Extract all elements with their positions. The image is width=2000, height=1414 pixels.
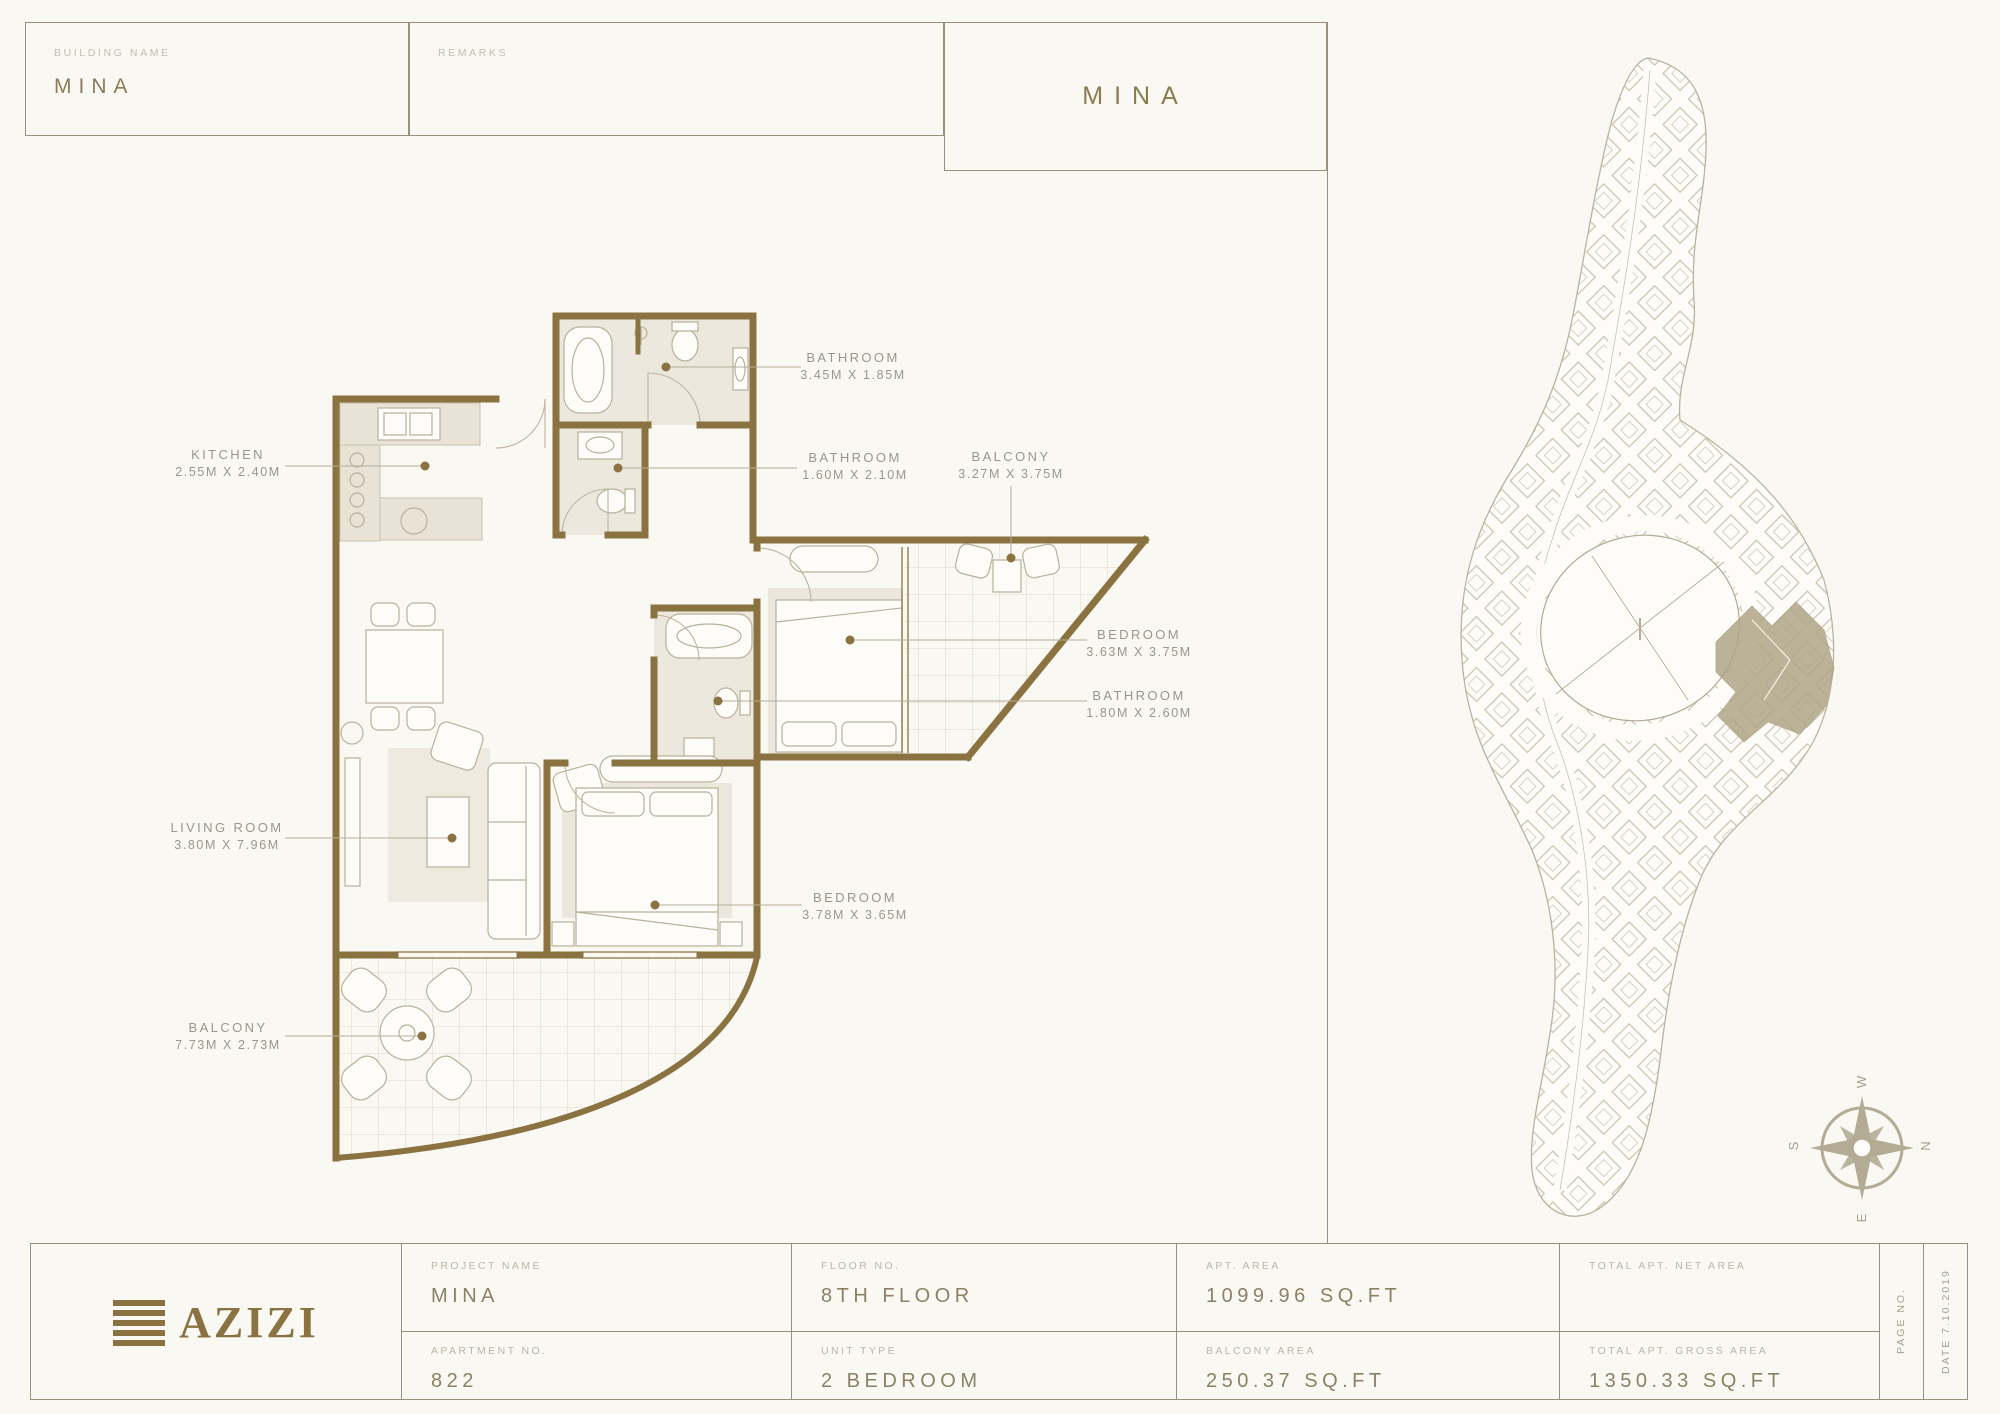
room-label-bedroom-2: BEDROOM3.78M X 3.65M [802, 890, 908, 922]
project-name-cell: PROJECT NAME MINA [431, 1260, 542, 1308]
page-no-label: PAGE NO. [1879, 1244, 1923, 1399]
apartment-no-cell: APARTMENT NO. 822 [431, 1345, 547, 1393]
room-label-bathroom-2: BATHROOM1.60M X 2.10M [802, 450, 908, 482]
compass-south-label: S [1786, 1141, 1801, 1150]
balcony-area-cell: BALCONY AREA 250.37 SQ.FT [1206, 1345, 1386, 1393]
total-net-area-cell: TOTAL APT. NET AREA [1589, 1260, 1746, 1285]
room-label-balcony-2: BALCONY7.73M X 2.73M [175, 1020, 281, 1052]
compass-north-label: N [1918, 1141, 1933, 1150]
compass-icon: W N E S [1786, 1075, 1933, 1222]
azizi-logo-bars-icon [113, 1300, 165, 1346]
floor-plan [0, 0, 1327, 1242]
panel-divider [1327, 22, 1328, 1243]
compass-east-label: E [1854, 1213, 1869, 1222]
site-plan: W N E S [1330, 0, 2000, 1242]
date-label: DATE 7.10.2019 [1923, 1244, 1969, 1399]
total-gross-area-cell: TOTAL APT. GROSS AREA 1350.33 SQ.FT [1589, 1345, 1784, 1393]
unit-type-cell: UNIT TYPE 2 BEDROOM [821, 1345, 982, 1393]
azizi-logo-text: AZIZI [179, 1301, 319, 1345]
azizi-logo: AZIZI [31, 1244, 401, 1401]
apt-area-cell: APT. AREA 1099.96 SQ.FT [1206, 1260, 1401, 1308]
room-label-kitchen: KITCHEN2.55M X 2.40M [175, 447, 281, 479]
room-label-bedroom-1: BEDROOM3.63M X 3.75M [1086, 627, 1192, 659]
title-block-table: AZIZI PROJECT NAME MINA APARTMENT NO. 82… [30, 1243, 1968, 1400]
room-label-living-room: LIVING ROOM3.80M X 7.96M [170, 820, 283, 852]
room-label-bathroom-1: BATHROOM3.45M X 1.85M [800, 350, 906, 382]
compass-west-label: W [1854, 1075, 1869, 1088]
room-label-balcony-1: BALCONY3.27M X 3.75M [958, 449, 1064, 481]
room-label-bathroom-3: BATHROOM1.80M X 2.60M [1086, 688, 1192, 720]
floor-no-cell: FLOOR NO. 8TH FLOOR [821, 1260, 974, 1308]
